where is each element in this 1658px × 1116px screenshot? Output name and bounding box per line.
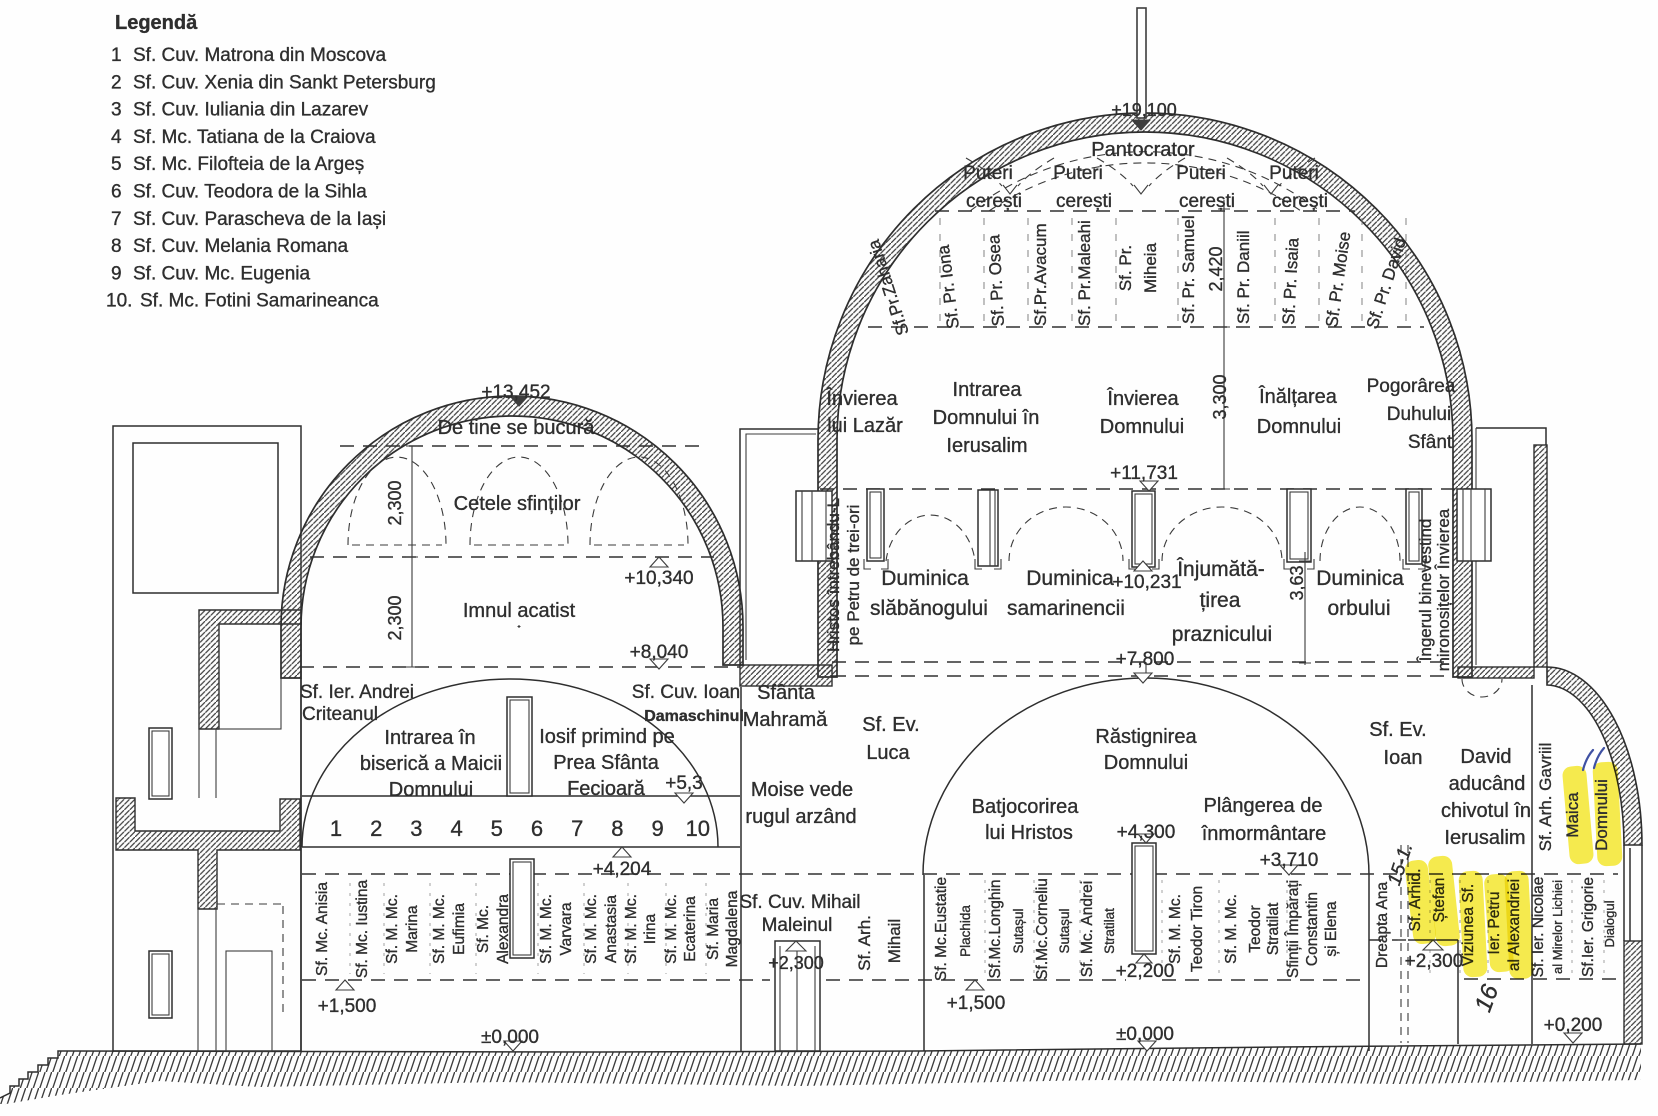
svg-text:Duminica: Duminica [881,567,969,590]
svg-text:Pogorârea: Pogorârea [1367,376,1456,397]
svg-text:1: 1 [330,816,342,841]
svg-text:Sf. Mc. Iustina: Sf. Mc. Iustina [354,880,371,979]
svg-text:Dialogul: Dialogul [1602,900,1617,947]
svg-text:+8,040: +8,040 [630,642,689,663]
svg-text:±0,000: ±0,000 [481,1027,539,1048]
svg-text:Sfânt: Sfânt [1408,432,1453,453]
svg-text:±0,000: ±0,000 [1116,1024,1174,1045]
svg-text:Sfânta: Sfânta [757,682,816,704]
svg-text:Sf. Cuv. Mc. Eugenia: Sf. Cuv. Mc. Eugenia [133,263,310,284]
svg-text:Puteri: Puteri [1269,163,1319,184]
svg-text:Sf. Pr.: Sf. Pr. [1116,245,1135,291]
svg-text:9: 9 [111,263,122,284]
svg-text:Imnul acatist: Imnul acatist [463,600,576,622]
svg-text:8: 8 [111,236,122,257]
svg-text:Sf. Cuv. Iuliania din Lazarev: Sf. Cuv. Iuliania din Lazarev [133,100,369,121]
svg-text:al Mirelor Lichiei: al Mirelor Lichiei [1550,880,1565,974]
svg-text:Legendă: Legendă [115,12,198,34]
svg-text:Sf. Pr.Maleahi: Sf. Pr.Maleahi [1075,220,1094,326]
svg-text:rugul arzând: rugul arzând [745,806,856,828]
svg-text:+1,500: +1,500 [318,996,377,1017]
svg-text:Sutașul: Sutașul [1011,908,1026,953]
svg-text:Fecioară: Fecioară [567,778,646,800]
svg-text:Sf.Pr.Avacum: Sf.Pr.Avacum [1031,223,1050,326]
svg-text:+2,300: +2,300 [1405,951,1464,972]
svg-text:Sf. Arh.: Sf. Arh. [855,915,874,971]
svg-text:Sf. Ev.: Sf. Ev. [1369,719,1426,741]
svg-text:Domnului: Domnului [1257,416,1341,438]
svg-text:Constantin: Constantin [1304,892,1321,966]
svg-text:Sf.Mc.Corneliu: Sf.Mc.Corneliu [1034,878,1051,980]
svg-text:Înălțarea: Înălțarea [1258,385,1338,408]
svg-text:Teodor Tiron: Teodor Tiron [1189,886,1206,972]
svg-text:Dreapta Ana: Dreapta Ana [1374,882,1391,969]
svg-text:Criteanul: Criteanul [302,704,378,725]
svg-text:Sf. Pr. Daniil: Sf. Pr. Daniil [1234,230,1253,324]
svg-text:Plângerea de: Plângerea de [1204,795,1323,817]
svg-text:Sf. Arh. Gavriil: Sf. Arh. Gavriil [1536,743,1555,852]
svg-text:biserică a Maicii: biserică a Maicii [360,753,502,775]
svg-text:3: 3 [410,816,422,841]
svg-text:Sf. Mc. Fotini Samarineanca: Sf. Mc. Fotini Samarineanca [140,291,379,312]
svg-text:Sf. Cuv. Melania Romana: Sf. Cuv. Melania Romana [133,236,349,257]
svg-text:Plachida: Plachida [958,905,973,957]
svg-text:și Elena: și Elena [1323,901,1340,957]
svg-text:Mahramă: Mahramă [743,709,828,731]
svg-text:Sf. Cuv. Ioan: Sf. Cuv. Ioan [632,682,740,703]
svg-text:Sf. M. Mc.: Sf. M. Mc. [1167,894,1184,964]
svg-text:Sf.Ier. Grigorie: Sf.Ier. Grigorie [1580,877,1597,977]
svg-text:Răstignirea: Răstignirea [1095,726,1197,748]
svg-text:Sutașul: Sutașul [1057,908,1072,953]
svg-text:Duminica: Duminica [1026,567,1114,590]
svg-text:Duhului: Duhului [1387,404,1451,425]
svg-text:Prea Sfânta: Prea Sfânta [553,752,660,774]
svg-text:7: 7 [111,209,122,230]
svg-text:6: 6 [531,816,543,841]
svg-text:+10,340: +10,340 [624,568,693,589]
svg-text:2: 2 [111,72,122,93]
svg-text:10.: 10. [106,291,132,312]
svg-text:Învierea: Învierea [825,387,898,410]
svg-text:Sf. Mc. Filofteia de la Argeș: Sf. Mc. Filofteia de la Argeș [133,154,364,175]
svg-text:Damaschinul: Damaschinul [644,708,744,725]
svg-text:Sf. Cuv. Matrona din Moscova: Sf. Cuv. Matrona din Moscova [133,45,387,66]
svg-text:Pantocrator: Pantocrator [1091,139,1195,161]
svg-text:Sf. Cuv. Parascheva de la Iași: Sf. Cuv. Parascheva de la Iași [133,209,386,230]
svg-text:2,300: 2,300 [385,595,405,640]
svg-text:Sf. Ev.: Sf. Ev. [862,714,919,736]
svg-text:cerești: cerești [1056,191,1112,212]
svg-text:Miheia: Miheia [1141,242,1160,293]
svg-text:Sfinții Împărați: Sfinții Împărați [1285,880,1302,978]
svg-text:Stratilat: Stratilat [1102,908,1117,954]
svg-text:5: 5 [491,816,503,841]
svg-text:pe Petru de trei-ori: pe Petru de trei-ori [844,505,863,646]
svg-text:cerești: cerești [1272,191,1328,212]
svg-text:5: 5 [111,154,122,175]
svg-text:Sf. M. Mc.: Sf. M. Mc. [663,894,680,964]
svg-text:9: 9 [651,816,663,841]
svg-text:Sf. Mc. Andrei: Sf. Mc. Andrei [1079,881,1096,977]
svg-text:Marina: Marina [404,905,421,953]
svg-text:Îngerul binevestind: Îngerul binevestind [1416,519,1435,663]
svg-text:+4,204: +4,204 [593,859,652,880]
svg-text:3,63: 3,63 [1287,565,1307,600]
svg-text:2,420: 2,420 [1206,246,1226,291]
svg-text:Duminica: Duminica [1316,567,1404,590]
svg-text:+5,3: +5,3 [665,773,703,794]
svg-text:Sf. Mc.: Sf. Mc. [475,905,492,953]
svg-text:Ierusalim: Ierusalim [1444,827,1525,849]
svg-text:De tine se bucură: De tine se bucură [438,417,596,439]
svg-text:Teodor: Teodor [1247,905,1264,952]
svg-text:+0,200: +0,200 [1544,1015,1603,1036]
svg-text:Sf. Mc. Anisia: Sf. Mc. Anisia [314,882,331,976]
svg-text:Domnului: Domnului [1100,416,1184,438]
svg-text:Sf. M. Mc.: Sf. M. Mc. [384,894,401,964]
svg-text:Sf. Cuv. Xenia din Sankt Peter: Sf. Cuv. Xenia din Sankt Petersburg [133,72,436,93]
svg-text:Înjumătă-: Înjumătă- [1176,558,1265,581]
svg-text:Sf. Ier. Andrei: Sf. Ier. Andrei [300,682,414,703]
svg-text:Ierusalim: Ierusalim [946,435,1027,457]
svg-text:Sf. M. Mc.: Sf. M. Mc. [431,894,448,964]
svg-text:cerești: cerești [966,191,1022,212]
svg-text:Eufimia: Eufimia [451,903,468,955]
svg-text:Mihail: Mihail [885,919,904,963]
svg-text:+10,231: +10,231 [1112,572,1181,593]
svg-text:Domnului în: Domnului în [933,407,1040,429]
svg-text:2,300: 2,300 [385,480,405,525]
svg-text:Sf. M. Mc.: Sf. M. Mc. [1223,894,1240,964]
svg-text:2: 2 [370,816,382,841]
svg-text:+19,100: +19,100 [1111,100,1177,120]
svg-text:Sf. M. Mc.: Sf. M. Mc. [623,894,640,964]
svg-text:+11,731: +11,731 [1110,463,1178,484]
svg-text:4: 4 [450,816,462,841]
svg-text:Sf. Cuv. Teodora de la Sihla: Sf. Cuv. Teodora de la Sihla [133,182,367,203]
svg-text:mironosițelor Învierea: mironosițelor Învierea [1434,508,1453,671]
svg-text:Puteri: Puteri [963,163,1013,184]
svg-text:+2,300: +2,300 [768,953,824,973]
svg-text:lui Hristos: lui Hristos [985,822,1073,844]
svg-text:Sf.Mc.Longhin: Sf.Mc.Longhin [987,879,1004,978]
svg-text:+4,300: +4,300 [1117,822,1176,843]
svg-text:orbului: orbului [1327,597,1390,620]
svg-text:10: 10 [686,816,710,841]
svg-text:Irina: Irina [642,914,659,945]
svg-text:8: 8 [611,816,623,841]
svg-text:Domnului: Domnului [1592,779,1611,851]
svg-text:Batjocorirea: Batjocorirea [972,796,1080,818]
svg-text:aducând: aducând [1449,773,1526,795]
svg-text:David: David [1460,746,1511,768]
svg-text:Sf. Maria: Sf. Maria [705,898,722,960]
svg-text:+3,710: +3,710 [1260,850,1319,871]
svg-text:+1,500: +1,500 [947,993,1006,1014]
svg-text:lui Lazăr: lui Lazăr [827,415,903,437]
svg-text:3,300: 3,300 [1210,374,1230,419]
svg-text:Sf. Pr. Samuel: Sf. Pr. Samuel [1179,215,1198,324]
svg-text:Învierea: Învierea [1106,387,1179,410]
svg-text:Domnului: Domnului [1104,752,1188,774]
svg-text:praznicului: praznicului [1172,623,1272,646]
svg-text:+7,800: +7,800 [1116,649,1175,670]
svg-text:+2,200: +2,200 [1116,961,1175,982]
svg-text:Varvara: Varvara [558,902,575,956]
svg-text:Maleinul: Maleinul [762,915,833,936]
svg-text:Ioan: Ioan [1384,747,1423,769]
svg-text:Domnului: Domnului [389,779,473,801]
svg-text:samarinencii: samarinencii [1007,597,1125,620]
svg-text:Stratilat: Stratilat [1265,902,1282,955]
svg-text:Cetele sfinților: Cetele sfinților [454,493,581,515]
svg-text:Sf. Cuv. Mihail: Sf. Cuv. Mihail [739,892,860,913]
svg-text:Intrarea în: Intrarea în [384,727,475,749]
svg-text:Maica: Maica [1563,792,1582,838]
svg-text:7: 7 [571,816,583,841]
svg-text:Sf. M. Mc.: Sf. M. Mc. [538,894,555,964]
svg-text:3: 3 [111,100,122,121]
svg-text:4: 4 [111,127,122,148]
svg-text:Iosif primind pe: Iosif primind pe [539,726,675,748]
svg-text:Anastasia: Anastasia [603,895,620,963]
svg-text:Magdalena: Magdalena [724,890,741,967]
svg-text:Sf. Mc. Tatiana de la Craiova: Sf. Mc. Tatiana de la Craiova [133,127,376,148]
svg-text:slăbănogului: slăbănogului [870,597,988,620]
svg-text:cerești: cerești [1179,191,1235,212]
svg-text:1: 1 [111,45,122,66]
svg-text:Intrarea: Intrarea [953,379,1023,401]
svg-text:6: 6 [111,182,122,203]
svg-text:Hristos întrebându-L: Hristos întrebându-L [824,498,843,652]
svg-text:Puteri: Puteri [1176,163,1226,184]
svg-text:Moise vede: Moise vede [751,779,853,801]
svg-text:Ecaterina: Ecaterina [682,896,699,962]
svg-text:Sf. Mc.Eustatie: Sf. Mc.Eustatie [933,877,950,981]
svg-text:Alexandra: Alexandra [495,894,512,964]
svg-text:Luca: Luca [866,742,910,764]
svg-text:Sf. M. Mc.: Sf. M. Mc. [583,894,600,964]
svg-text:+13,452: +13,452 [481,382,550,403]
svg-text:înmormântare: înmormântare [1201,823,1327,845]
svg-text:țirea: țirea [1200,589,1241,612]
svg-text:Puteri: Puteri [1053,163,1103,184]
svg-text:chivotul în: chivotul în [1441,800,1531,822]
